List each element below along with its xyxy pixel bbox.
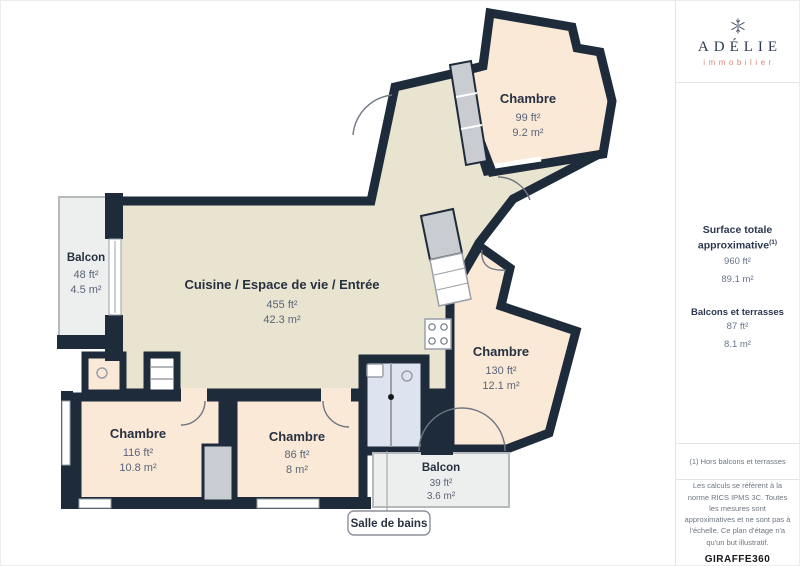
room-area-ft: 48 ft² bbox=[73, 269, 98, 281]
room-area-ft: 99 ft² bbox=[515, 112, 540, 124]
room-label: Cuisine / Espace de vie / Entrée bbox=[184, 277, 379, 292]
floorplan-page: Chambre 99 ft² 9.2 m² Balcon 48 ft² 4.5 … bbox=[0, 0, 800, 566]
room-salle-de-bains bbox=[363, 359, 425, 451]
disclaimer-text: Les calculs se réfèrent à la norme RICS … bbox=[683, 480, 792, 548]
room-area-m: 3.6 m² bbox=[427, 491, 456, 502]
room-area-ft: 455 ft² bbox=[266, 299, 298, 311]
footnote: (1) Hors balcons et terrasses bbox=[676, 443, 799, 479]
surface-title-footnote-marker: (1) bbox=[769, 239, 777, 246]
balconies-ft: 87 ft² bbox=[676, 318, 799, 336]
balconies-title: Balcons et terrasses bbox=[676, 307, 799, 318]
room-label: Chambre bbox=[110, 426, 166, 441]
watermark-rest: 360 bbox=[752, 554, 770, 565]
legal-section: Les calculs se réfèrent à la norme RICS … bbox=[676, 479, 799, 566]
floor-plan: Chambre 99 ft² 9.2 m² Balcon 48 ft² 4.5 … bbox=[1, 1, 675, 566]
room-area-m: 10.8 m² bbox=[119, 462, 157, 474]
closet-room bbox=[147, 355, 177, 393]
room-label: Chambre bbox=[500, 91, 556, 106]
room-label: Chambre bbox=[473, 344, 529, 359]
surface-total-title: Surface totale approximative(1) bbox=[676, 223, 799, 253]
surface-summary: Surface totale approximative(1) 960 ft² … bbox=[676, 83, 799, 443]
room-area-ft: 130 ft² bbox=[485, 365, 517, 377]
brand-logo: ADÉLIE immobilier bbox=[676, 1, 799, 83]
floor-plan-drawing: Chambre 99 ft² 9.2 m² Balcon 48 ft² 4.5 … bbox=[1, 1, 675, 566]
snowflake-star-icon bbox=[729, 17, 747, 35]
surface-total-m: 89.1 m² bbox=[676, 271, 799, 289]
balconies-m: 8.1 m² bbox=[676, 336, 799, 354]
giraffe360-watermark: GIRAFFE360 bbox=[705, 554, 771, 565]
room-area-m: 8 m² bbox=[286, 464, 308, 476]
room-area-m: 9.2 m² bbox=[512, 127, 544, 139]
bedroom-closet bbox=[203, 445, 233, 501]
info-sidebar: ADÉLIE immobilier Surface totale approxi… bbox=[675, 1, 799, 566]
room-label: Chambre bbox=[269, 429, 325, 444]
surface-total-ft: 960 ft² bbox=[676, 253, 799, 271]
stove-icon bbox=[425, 319, 451, 349]
brand-name: ADÉLIE bbox=[698, 39, 782, 56]
room-area-m: 42.3 m² bbox=[263, 314, 301, 326]
room-label: Balcon bbox=[67, 252, 105, 264]
room-area-ft: 86 ft² bbox=[284, 449, 309, 461]
surface-total-title-text: Surface totale approximative bbox=[698, 224, 772, 251]
brand-tagline: immobilier bbox=[703, 58, 774, 67]
door-pivot-icon bbox=[388, 394, 394, 400]
room-area-ft: 39 ft² bbox=[430, 478, 453, 489]
sink-icon bbox=[367, 364, 383, 377]
room-area-m: 4.5 m² bbox=[70, 284, 102, 296]
watermark-bold: GIRAFFE bbox=[705, 554, 752, 565]
room-area-ft: 116 ft² bbox=[123, 447, 154, 459]
room-area-m: 12.1 m² bbox=[482, 380, 520, 392]
room-label: Balcon bbox=[422, 462, 460, 474]
room-label: Salle de bains bbox=[351, 518, 428, 530]
